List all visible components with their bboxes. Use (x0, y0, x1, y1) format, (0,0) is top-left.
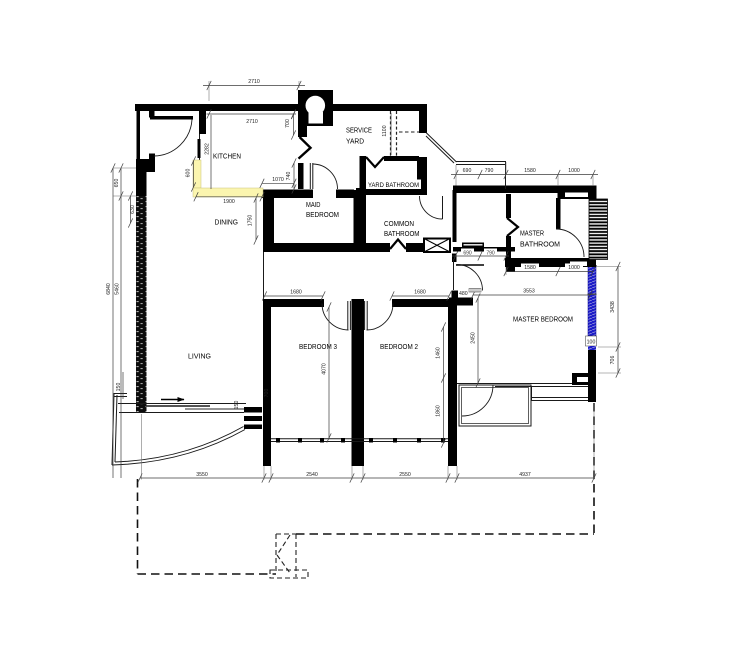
svg-text:2540: 2540 (306, 472, 318, 478)
svg-text:KITCHEN: KITCHEN (213, 152, 241, 161)
svg-text:5460: 5460 (115, 283, 121, 295)
svg-text:480: 480 (459, 291, 468, 297)
svg-text:1100: 1100 (382, 125, 388, 136)
svg-text:6840: 6840 (106, 283, 112, 295)
svg-text:2550: 2550 (399, 472, 411, 478)
svg-text:COMMON: COMMON (384, 219, 414, 228)
svg-text:LIVING: LIVING (188, 352, 211, 361)
svg-text:100: 100 (587, 340, 596, 346)
svg-text:1750: 1750 (248, 215, 254, 227)
svg-text:YARD: YARD (346, 137, 365, 146)
svg-text:2710: 2710 (248, 79, 260, 85)
svg-text:1000: 1000 (568, 265, 580, 271)
svg-text:MAID: MAID (306, 200, 321, 209)
svg-text:BEDROOM 2: BEDROOM 2 (380, 342, 418, 351)
svg-text:1000: 1000 (568, 168, 580, 174)
svg-text:2710: 2710 (246, 119, 258, 125)
svg-text:DINING: DINING (215, 218, 239, 227)
svg-text:706: 706 (610, 356, 616, 365)
svg-text:2450: 2450 (471, 332, 477, 344)
svg-text:700: 700 (285, 119, 291, 128)
svg-text:650: 650 (114, 179, 120, 188)
svg-text:4937: 4937 (519, 472, 531, 478)
svg-text:YARD BATHROOM: YARD BATHROOM (368, 182, 419, 189)
svg-text:700: 700 (264, 389, 270, 398)
svg-text:150: 150 (234, 401, 240, 410)
svg-text:3550: 3550 (196, 472, 208, 478)
svg-text:4070: 4070 (322, 363, 328, 375)
svg-text:690: 690 (463, 168, 472, 174)
svg-text:BATHROOM: BATHROOM (520, 240, 560, 249)
svg-text:BATHROOM: BATHROOM (384, 229, 420, 238)
svg-text:1860: 1860 (436, 405, 442, 417)
svg-text:1580: 1580 (524, 168, 536, 174)
svg-text:1680: 1680 (290, 290, 302, 296)
svg-text:600: 600 (186, 169, 192, 178)
svg-text:MASTER: MASTER (520, 229, 544, 238)
svg-text:3553: 3553 (523, 289, 535, 295)
svg-text:1070: 1070 (272, 177, 284, 183)
svg-text:1900: 1900 (223, 199, 235, 205)
svg-text:2282: 2282 (205, 143, 211, 155)
svg-text:150: 150 (116, 383, 122, 392)
svg-text:1580: 1580 (524, 265, 536, 271)
svg-text:790: 790 (485, 168, 494, 174)
svg-text:630: 630 (130, 205, 136, 214)
svg-text:1460: 1460 (436, 347, 442, 359)
svg-text:790: 790 (486, 251, 495, 257)
svg-text:690: 690 (463, 251, 472, 257)
svg-text:SERVICE: SERVICE (346, 126, 372, 135)
svg-text:MASTER BEDROOM: MASTER BEDROOM (513, 315, 573, 324)
svg-text:BEDROOM 3: BEDROOM 3 (299, 342, 337, 351)
svg-text:1680: 1680 (414, 290, 426, 296)
svg-text:BEDROOM: BEDROOM (306, 210, 339, 219)
svg-text:740: 740 (286, 172, 292, 181)
svg-text:3438: 3438 (610, 301, 616, 313)
